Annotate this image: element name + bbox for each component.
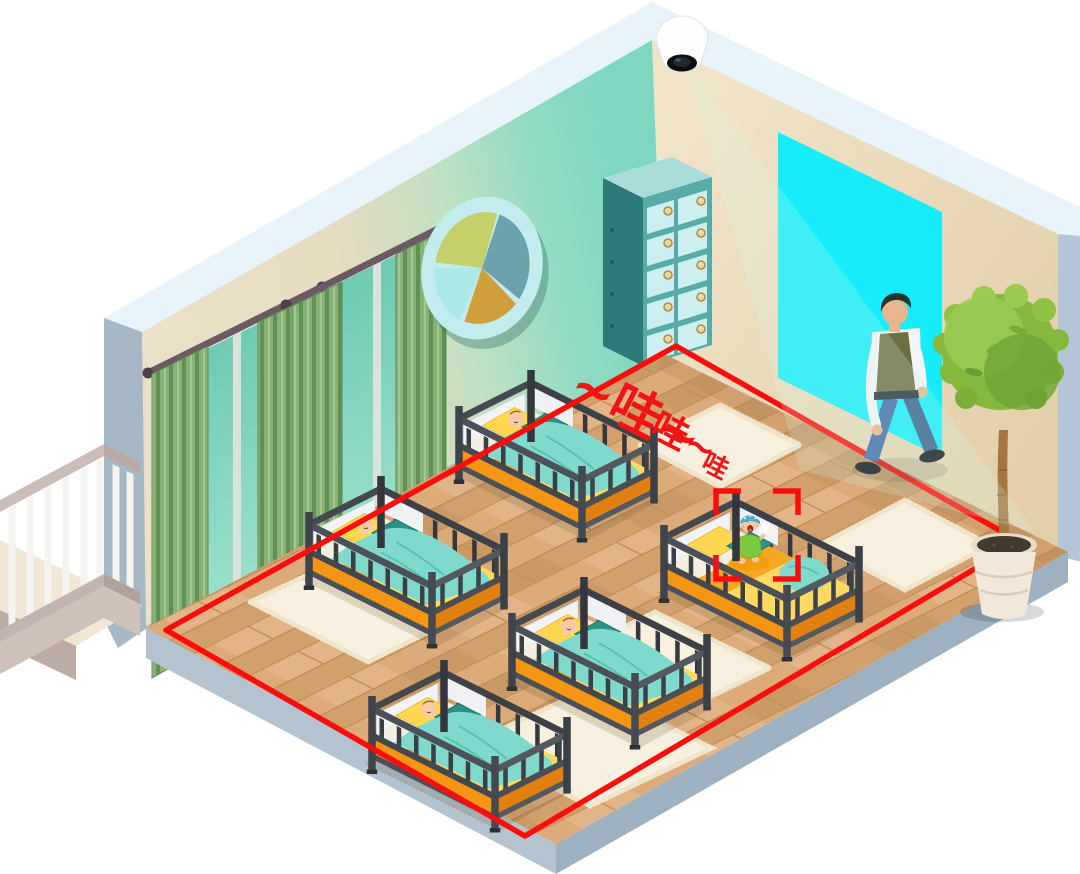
isometric-nursery-scene: ~哇~ 哇~ 哇: [0, 0, 1080, 874]
nursery-monitoring-illustration: ~哇~ 哇~ 哇: [0, 0, 1080, 874]
ceiling-camera-icon: [656, 16, 708, 72]
right-wall-outer-edge: [1058, 234, 1080, 562]
storage-cabinet: [603, 157, 712, 366]
